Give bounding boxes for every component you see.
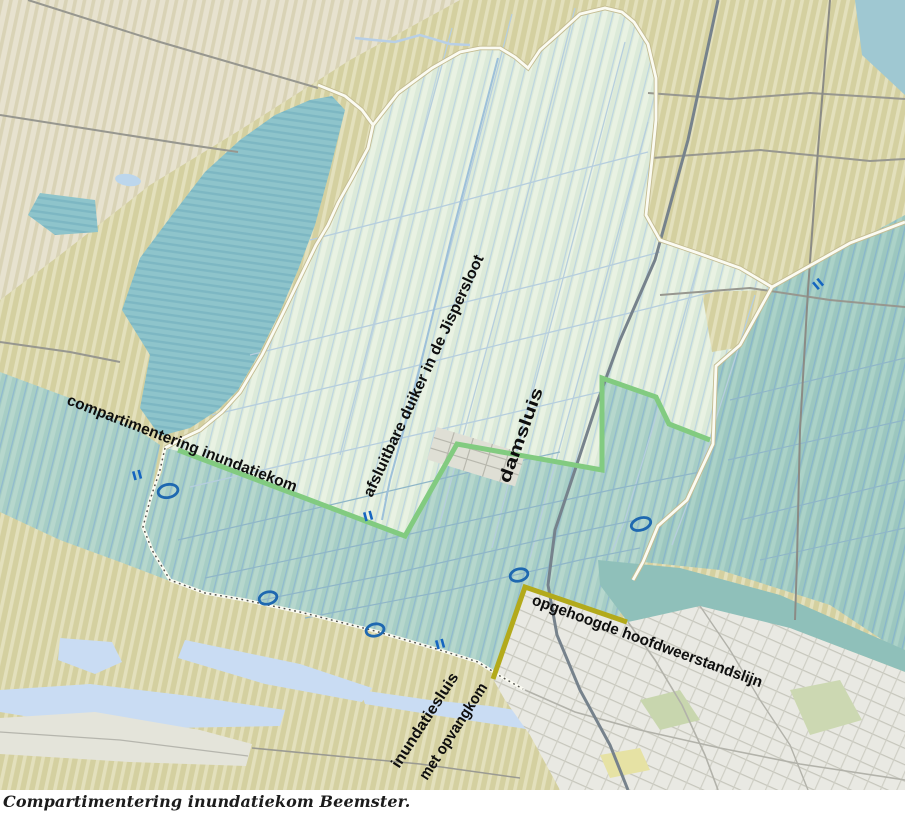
beemster-map: compartimentering inundatiekom afsluitba…	[0, 0, 905, 790]
map-canvas: compartimentering inundatiekom afsluitba…	[0, 0, 905, 790]
map-caption: Compartimentering inundatiekom Beemster.	[3, 792, 883, 811]
page: compartimentering inundatiekom afsluitba…	[0, 0, 905, 820]
